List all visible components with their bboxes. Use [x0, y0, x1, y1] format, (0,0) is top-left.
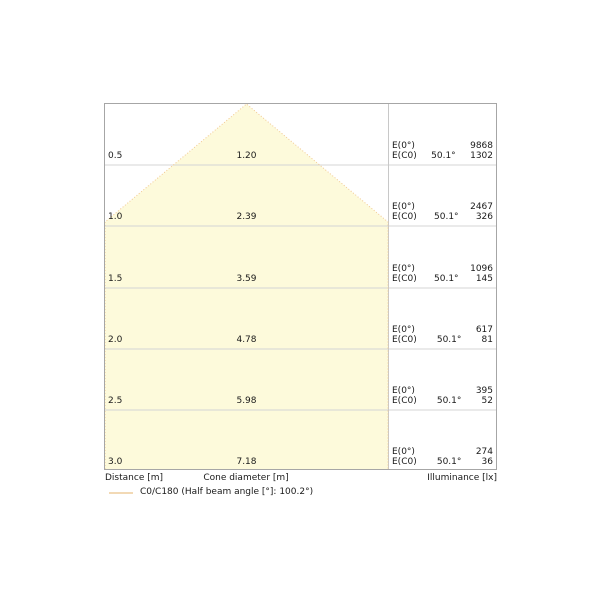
beam-angle-value: 50.1° — [417, 335, 482, 345]
e0-value: 1096 — [470, 264, 493, 274]
axis-label-cone-diameter: Cone diameter [m] — [104, 473, 388, 484]
illuminance-block: E(0°)1096 E(C0)50.1°145 — [392, 264, 493, 284]
e0-label: E(0°) — [392, 325, 415, 335]
ec0-value: 36 — [482, 457, 493, 467]
e0-value: 617 — [476, 325, 493, 335]
cone-diameter-value: 5.98 — [105, 396, 388, 406]
e0-row: E(0°)395 — [392, 386, 493, 396]
illuminance-block: E(0°)274 E(C0)50.1°36 — [392, 447, 493, 467]
e0-row: E(0°)617 — [392, 325, 493, 335]
illuminance-block: E(0°)617 E(C0)50.1°81 — [392, 325, 493, 345]
cone-diameter-value: 4.78 — [105, 335, 388, 345]
ec0-row: E(C0)50.1°36 — [392, 457, 493, 467]
e0-value: 274 — [476, 447, 493, 457]
chart-area: 0.5 1.0 1.5 2.0 2.5 3.0 1.20 2.39 3.59 4… — [104, 103, 497, 470]
legend-label: C0/C180 (Half beam angle [°]: 100.2°) — [140, 487, 313, 498]
ec0-value: 145 — [476, 274, 493, 284]
ec0-row: E(C0)50.1°52 — [392, 396, 493, 406]
ec0-row: E(C0)50.1°81 — [392, 335, 493, 345]
ec0-value: 1302 — [470, 151, 493, 161]
ec0-value: 326 — [476, 212, 493, 222]
ec0-label: E(C0) — [392, 151, 417, 161]
e0-value: 395 — [476, 386, 493, 396]
cone-diameter-value: 3.59 — [105, 274, 388, 284]
e0-label: E(0°) — [392, 141, 415, 151]
e0-value: 9868 — [470, 141, 493, 151]
ec0-label: E(C0) — [392, 457, 417, 467]
cone-diameter-value: 2.39 — [105, 212, 388, 222]
cone-diameter-value: 1.20 — [105, 151, 388, 161]
ec0-row: E(C0)50.1°145 — [392, 274, 493, 284]
e0-label: E(0°) — [392, 202, 415, 212]
e0-label: E(0°) — [392, 264, 415, 274]
beam-angle-value: 50.1° — [417, 457, 482, 467]
cone-diameter-value: 7.18 — [105, 457, 388, 467]
e0-row: E(0°)1096 — [392, 264, 493, 274]
illuminance-block: E(0°)9868 E(C0)50.1°1302 — [392, 141, 493, 161]
ec0-label: E(C0) — [392, 396, 417, 406]
axis-label-illuminance: Illuminance [lx] — [427, 473, 497, 484]
beam-angle-value: 50.1° — [417, 396, 482, 406]
beam-angle-value: 50.1° — [417, 274, 476, 284]
e0-label: E(0°) — [392, 447, 415, 457]
ec0-label: E(C0) — [392, 212, 417, 222]
e0-row: E(0°)9868 — [392, 141, 493, 151]
beam-angle-value: 50.1° — [417, 151, 470, 161]
e0-label: E(0°) — [392, 386, 415, 396]
ec0-row: E(C0)50.1°1302 — [392, 151, 493, 161]
ec0-label: E(C0) — [392, 335, 417, 345]
e0-row: E(0°)274 — [392, 447, 493, 457]
beam-angle-value: 50.1° — [417, 212, 476, 222]
illuminance-block: E(0°)2467 E(C0)50.1°326 — [392, 202, 493, 222]
ec0-value: 81 — [482, 335, 493, 345]
legend-line-swatch — [109, 492, 133, 494]
ec0-label: E(C0) — [392, 274, 417, 284]
photometric-cone-diagram: { "chart_data": { "type": "area", "subty… — [0, 0, 600, 600]
ec0-row: E(C0)50.1°326 — [392, 212, 493, 222]
e0-row: E(0°)2467 — [392, 202, 493, 212]
illuminance-block: E(0°)395 E(C0)50.1°52 — [392, 386, 493, 406]
ec0-value: 52 — [482, 396, 493, 406]
e0-value: 2467 — [470, 202, 493, 212]
